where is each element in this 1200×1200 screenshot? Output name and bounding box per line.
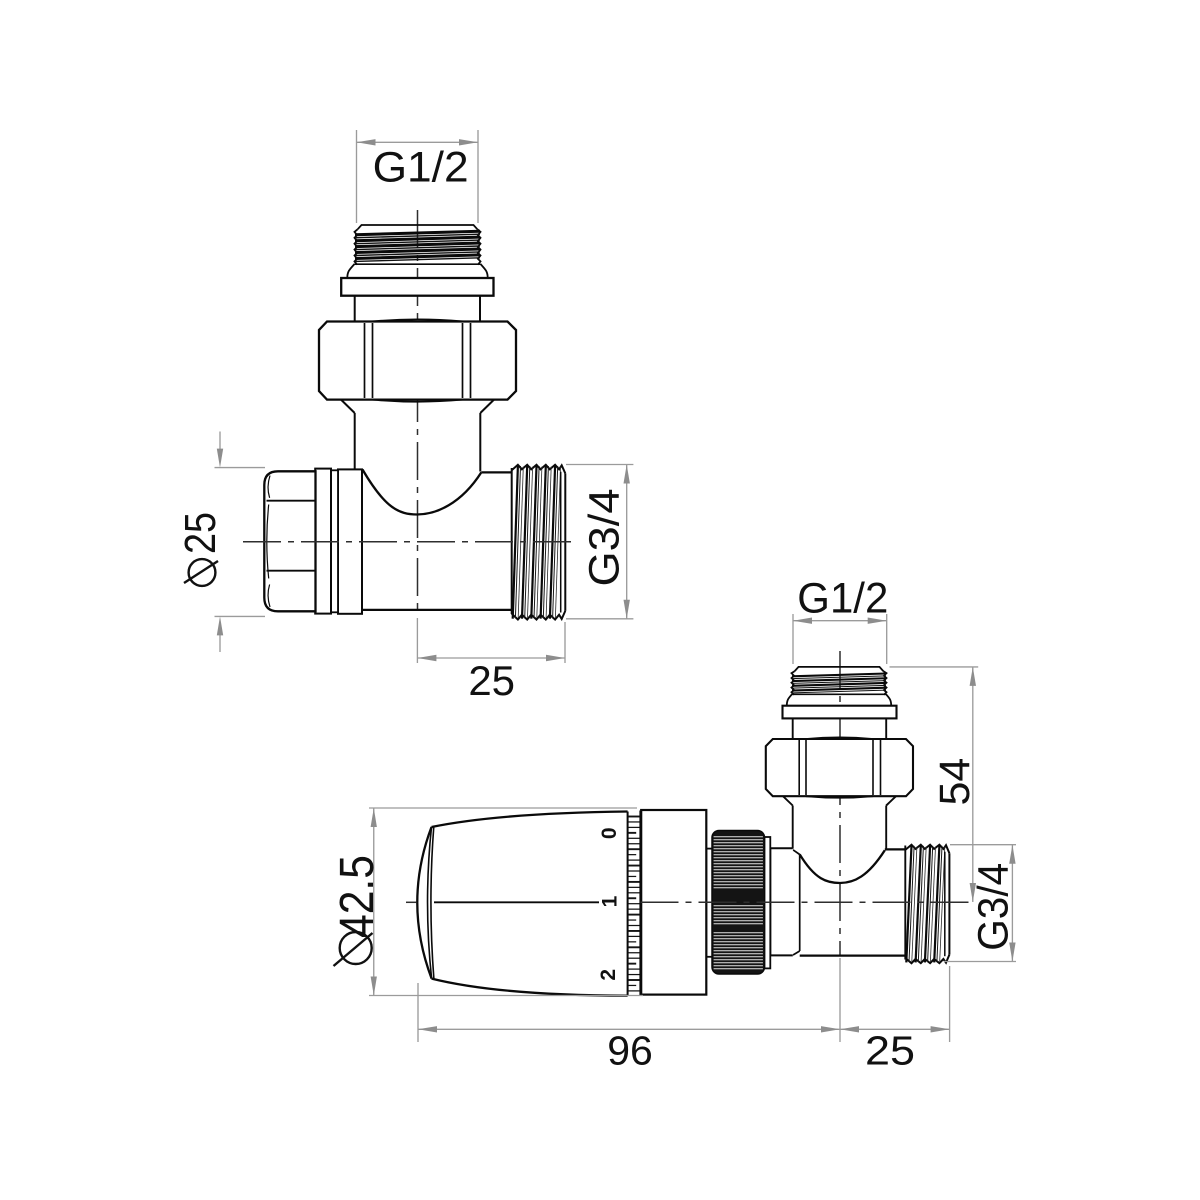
svg-text:0: 0 bbox=[598, 827, 621, 839]
svg-text:G1/2: G1/2 bbox=[797, 575, 888, 623]
svg-text:G3/4: G3/4 bbox=[969, 863, 1017, 951]
svg-text:54: 54 bbox=[931, 758, 979, 806]
svg-text:1: 1 bbox=[599, 895, 622, 907]
svg-text:G3/4: G3/4 bbox=[581, 489, 629, 587]
svg-text:G1/2: G1/2 bbox=[373, 143, 469, 191]
svg-text:25: 25 bbox=[176, 512, 225, 554]
svg-text:2: 2 bbox=[597, 969, 620, 981]
svg-text:42.5: 42.5 bbox=[331, 855, 384, 938]
svg-text:25: 25 bbox=[468, 657, 515, 704]
svg-text:25: 25 bbox=[865, 1028, 915, 1074]
svg-text:96: 96 bbox=[607, 1028, 653, 1074]
